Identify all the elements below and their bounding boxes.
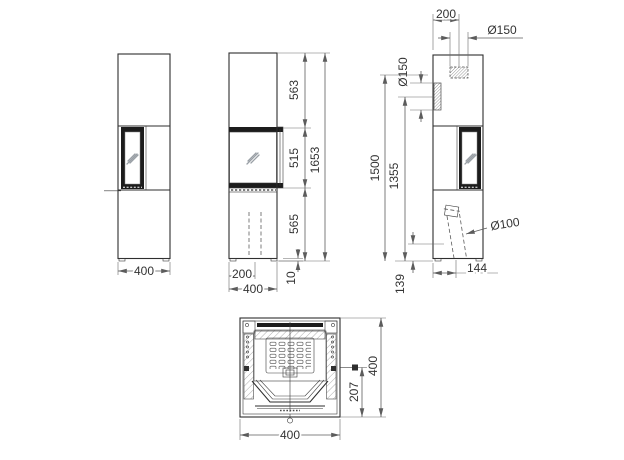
left-side-view: 400: [104, 54, 170, 278]
dim-right-flue-rear-diameter: Ø150: [396, 57, 410, 87]
technical-drawing-page: 400 563 515 565 1653 200: [0, 0, 624, 460]
combustion-air-duct: [443, 205, 460, 217]
bolt: [245, 323, 248, 326]
dim-front-total: 1653: [308, 146, 322, 173]
latch-right: [331, 366, 336, 371]
latch-pin: [352, 365, 358, 371]
flue-outlet-rear: [434, 83, 441, 110]
corner-post: [243, 321, 255, 333]
dim-front-width: 400: [243, 282, 263, 296]
flue-outlet-top: [450, 67, 468, 78]
corner-post: [325, 321, 337, 333]
dim-front-lower: 565: [287, 214, 301, 234]
dim-front-foot: 10: [284, 271, 298, 285]
latch-left: [244, 366, 249, 371]
technical-drawing-canvas: 400 563 515 565 1653 200: [0, 0, 624, 460]
dim-section-width: 400: [280, 428, 300, 442]
top-section-view: 207 400 400: [240, 318, 386, 442]
dim-section-depth: 400: [366, 356, 380, 376]
dim-right-flue-top-diameter: Ø150: [487, 23, 517, 37]
dim-right-rear-height: 1355: [387, 162, 401, 189]
dim-front-duct-offset: 200: [232, 267, 252, 281]
door-top-bar: [229, 127, 283, 132]
dim-section-latch: 207: [347, 382, 361, 402]
door-bottom-bar: [229, 183, 283, 188]
bolt: [331, 323, 334, 326]
dim-right-air-offset: 144: [467, 261, 487, 275]
dim-right-air-diameter: Ø100: [489, 215, 521, 233]
right-side-view: 200 Ø150 Ø150 1500 1355 Ø100 144 139: [368, 7, 523, 294]
dim-right-flue-offset: 200: [436, 7, 456, 21]
front-view: 563 515 565 1653 200 400 10: [229, 53, 330, 296]
dim-right-top-height: 1500: [368, 154, 382, 181]
knob: [287, 418, 292, 423]
dim-right-air-height: 139: [393, 274, 407, 294]
dim-front-door: 515: [287, 148, 301, 168]
dim-front-upper: 563: [287, 80, 301, 100]
glass-shine: [247, 153, 259, 164]
dim-left-width: 400: [134, 264, 154, 278]
